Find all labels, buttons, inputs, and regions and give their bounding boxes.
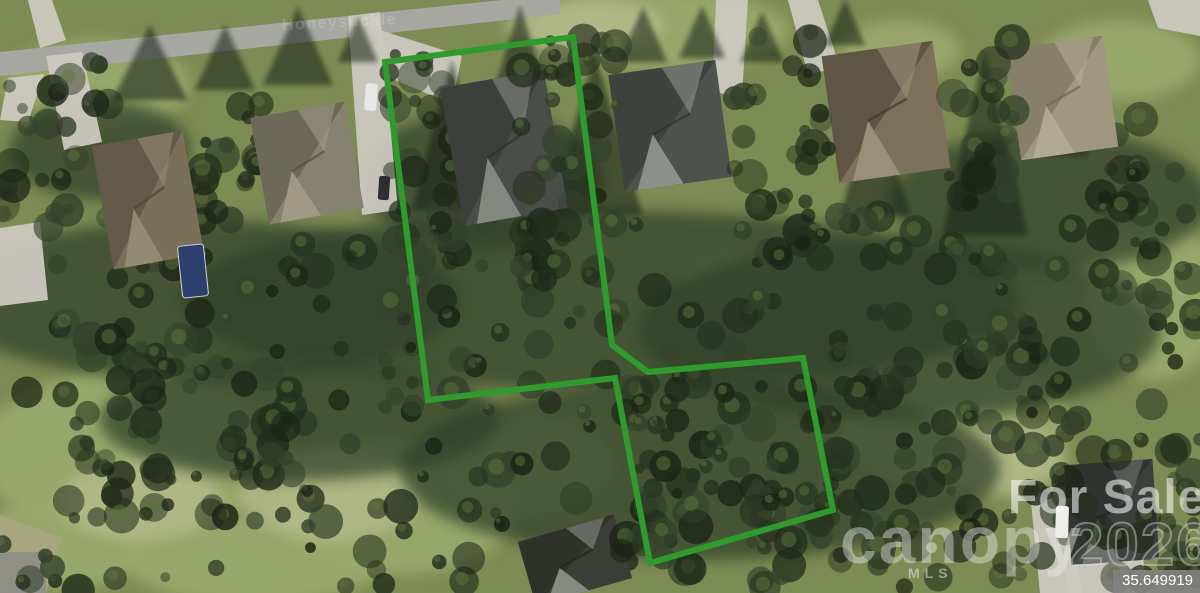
vehicle [1055, 506, 1069, 538]
vehicle [364, 83, 378, 111]
pool [177, 244, 208, 298]
house [608, 60, 731, 192]
aerial-scene-svg [0, 0, 1200, 593]
house [822, 41, 951, 183]
vehicle [378, 176, 391, 201]
house [250, 101, 363, 224]
aerial-photo: Honeysuckle canopy 2026 For Sale MLS 35.… [0, 0, 1200, 593]
